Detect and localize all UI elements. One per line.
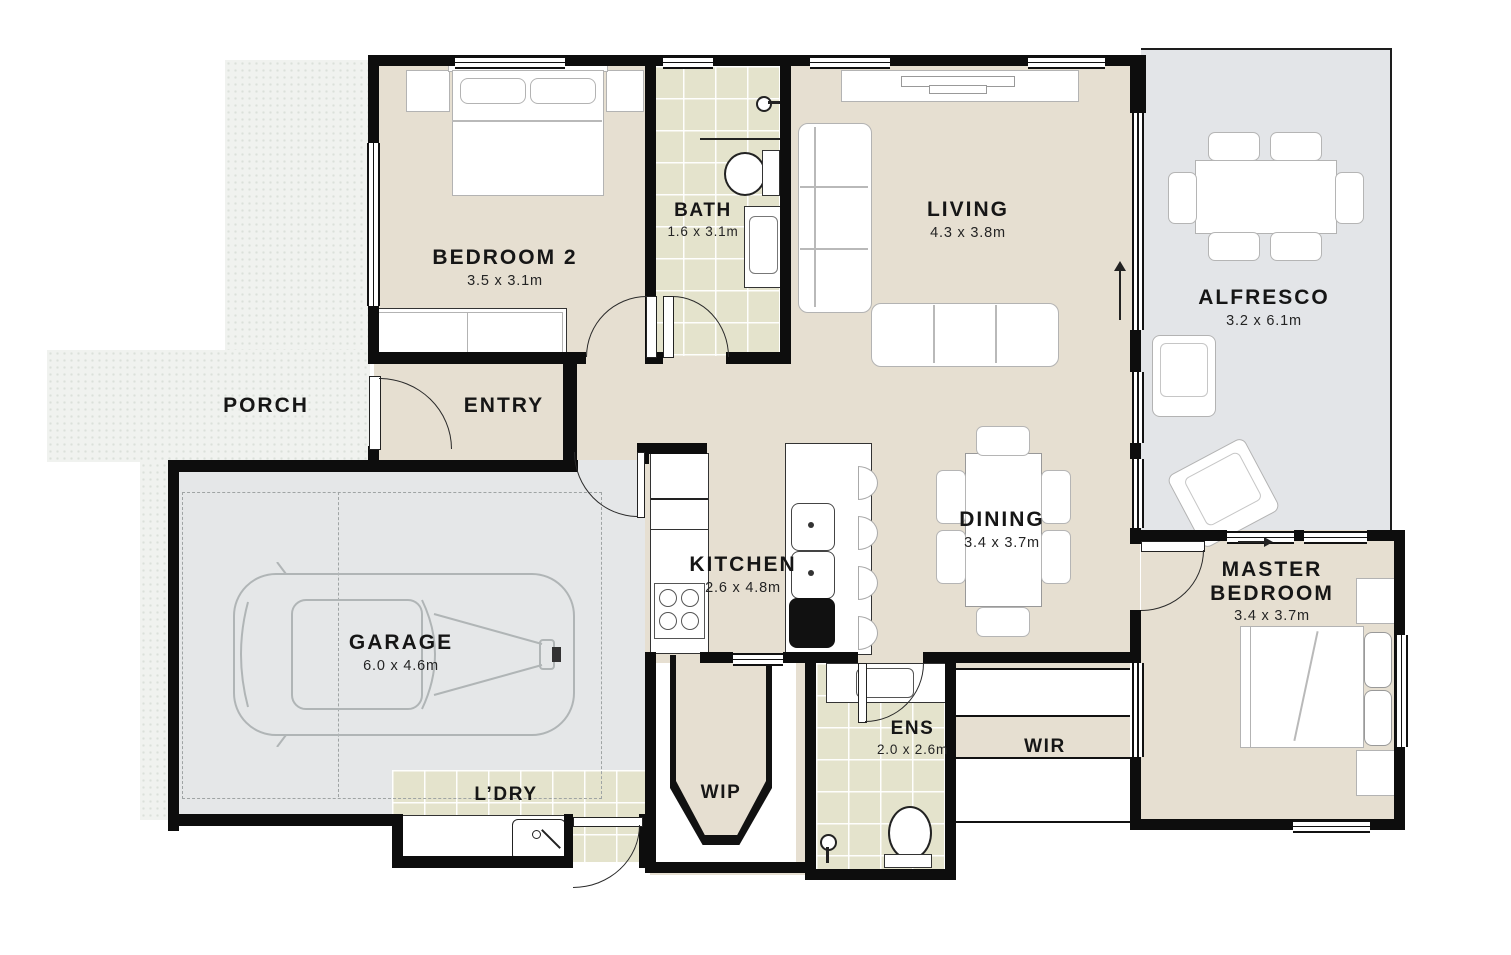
bedside-table	[406, 70, 450, 112]
dining-chair	[976, 426, 1030, 456]
room-dims: 3.4 x 3.7m	[1187, 608, 1357, 624]
cavity-slider	[1132, 663, 1144, 757]
outdoor-table	[1195, 160, 1337, 234]
outdoor-chair	[1270, 232, 1322, 261]
window	[810, 56, 890, 69]
floor-plan: PORCH BEDROOM 2 3.5 x 3.1m BATH 1.6 x 3.…	[0, 0, 1511, 955]
wardrobe-door	[467, 312, 563, 354]
bedside-table	[606, 70, 644, 112]
cooktop-burner	[659, 612, 677, 630]
room-label-garage: GARAGE 6.0 x 4.6m	[301, 631, 501, 674]
pillow	[1364, 632, 1392, 688]
wall	[392, 856, 572, 868]
room-name: WIP	[671, 782, 771, 803]
wall	[805, 652, 816, 880]
wall	[1130, 528, 1141, 544]
room-name: L’DRY	[406, 784, 606, 805]
outdoor-chair	[1168, 172, 1197, 224]
porch-area	[225, 60, 370, 352]
sofa	[798, 123, 872, 313]
wall	[780, 66, 791, 364]
room-name: MASTER BEDROOM	[1187, 558, 1357, 605]
toilet-bowl	[888, 806, 932, 860]
toilet-cistern	[762, 150, 780, 196]
room-label-bath: BATH 1.6 x 3.1m	[645, 200, 761, 239]
fridge	[650, 453, 709, 531]
outdoor-chair	[1208, 232, 1260, 261]
garage-door-leaf	[637, 452, 645, 518]
window	[1293, 820, 1370, 833]
fridge-door-line	[651, 498, 708, 500]
room-dims: 4.3 x 3.8m	[868, 225, 1068, 241]
porch-path	[140, 462, 168, 820]
wall	[1130, 757, 1141, 819]
room-name: ALFRESCO	[1164, 286, 1364, 310]
window	[663, 56, 713, 69]
outdoor-chair	[1208, 132, 1260, 161]
room-name: ENTRY	[404, 394, 604, 418]
sofa-cushion-line	[800, 248, 868, 250]
room-label-alfresco: ALFRESCO 3.2 x 6.1m	[1164, 286, 1364, 329]
room-dims: 2.6 x 4.8m	[643, 580, 843, 596]
shower-head-icon	[756, 96, 772, 112]
room-dims: 1.6 x 3.1m	[645, 224, 761, 239]
dining-chair	[976, 607, 1030, 637]
sofa-back-line	[814, 127, 816, 307]
car-detail	[552, 647, 561, 662]
wardrobe-shelf	[956, 668, 1130, 717]
laundry-tub	[512, 819, 566, 861]
sink-drain	[808, 522, 814, 528]
room-dims: 3.4 x 3.7m	[902, 535, 1102, 551]
wall	[645, 443, 707, 454]
shower-head-icon	[820, 834, 837, 851]
direction-arrow-right	[1238, 541, 1264, 543]
window	[1304, 531, 1367, 544]
dishwasher	[789, 598, 835, 648]
direction-arrow-up	[1119, 270, 1121, 320]
wall	[564, 814, 573, 868]
outdoor-chair	[1270, 132, 1322, 161]
blanket-line	[452, 120, 602, 122]
tub-drain	[532, 830, 541, 839]
wall	[1130, 55, 1146, 113]
pillow	[1364, 690, 1392, 746]
shower-stem	[826, 847, 829, 863]
room-label-ens: ENS 2.0 x 2.6m	[840, 718, 985, 757]
window	[455, 56, 565, 69]
room-name: LIVING	[868, 198, 1068, 222]
sofa-cushion-line	[995, 305, 997, 363]
room-label-entry: ENTRY	[404, 394, 604, 421]
sofa-cushion-line	[800, 186, 868, 188]
armchair-cushion	[1160, 343, 1208, 397]
wall	[805, 869, 956, 880]
wall	[700, 652, 733, 663]
sofa	[871, 303, 1059, 367]
toilet-cistern	[884, 854, 932, 868]
wall	[783, 652, 858, 663]
wall	[645, 652, 656, 873]
wall	[923, 652, 1130, 663]
room-dims: 3.5 x 3.1m	[405, 273, 605, 289]
direction-arrow-right-head	[1264, 537, 1273, 547]
window	[1028, 56, 1105, 69]
wardrobe-door	[377, 312, 473, 354]
room-label-wir: WIR	[995, 736, 1095, 760]
wall	[1130, 330, 1141, 372]
bedroom2-door-leaf	[646, 296, 657, 358]
room-name: BATH	[645, 200, 761, 221]
room-label-kitchen: KITCHEN 2.6 x 4.8m	[643, 553, 843, 596]
wall	[168, 814, 403, 826]
room-dims: 6.0 x 4.6m	[301, 658, 501, 674]
room-label-living: LIVING 4.3 x 3.8m	[868, 198, 1068, 241]
room-name: BEDROOM 2	[405, 246, 605, 270]
double-bed	[1250, 626, 1364, 748]
sliding-door	[1132, 113, 1144, 330]
wall	[1294, 530, 1304, 541]
room-name: GARAGE	[301, 631, 501, 655]
pillow	[460, 78, 526, 104]
room-label-laundry: L’DRY	[406, 784, 606, 808]
room-label-dining: DINING 3.4 x 3.7m	[902, 508, 1102, 551]
wall	[168, 460, 578, 472]
room-name: KITCHEN	[643, 553, 843, 577]
cooktop-burner	[681, 612, 699, 630]
room-dims: 3.2 x 6.1m	[1164, 313, 1364, 329]
window	[1395, 635, 1408, 747]
room-label-master-bedroom: MASTER BEDROOM 3.4 x 3.7m	[1187, 558, 1357, 624]
shower-screen	[700, 138, 781, 140]
wall	[368, 352, 586, 364]
sliding-door	[1132, 372, 1144, 443]
room-label-wip: WIP	[671, 782, 771, 806]
room-name: DINING	[902, 508, 1102, 532]
tv-stand	[929, 85, 987, 94]
room-name: ENS	[840, 718, 985, 739]
room-label-porch: PORCH	[166, 394, 366, 421]
room-name: PORCH	[166, 394, 366, 418]
room-dims: 2.0 x 2.6m	[840, 742, 985, 757]
wall	[1130, 610, 1141, 663]
laundry-door-arc	[573, 825, 640, 888]
sliding-door	[1132, 459, 1144, 528]
room-label-bedroom-2: BEDROOM 2 3.5 x 3.1m	[405, 246, 605, 289]
sofa-cushion-line	[933, 305, 935, 363]
pillow	[530, 78, 596, 104]
room-name: WIR	[995, 736, 1095, 757]
direction-arrow-up-head	[1114, 261, 1126, 271]
cased-opening	[733, 653, 783, 666]
wall	[945, 820, 956, 880]
wall	[1141, 530, 1227, 541]
wall	[645, 862, 816, 873]
window	[367, 143, 380, 306]
wall	[1130, 443, 1141, 459]
outdoor-chair	[1335, 172, 1364, 224]
wardrobe-shelf	[956, 757, 1130, 823]
wall	[168, 460, 179, 831]
toilet-bowl	[724, 152, 766, 196]
